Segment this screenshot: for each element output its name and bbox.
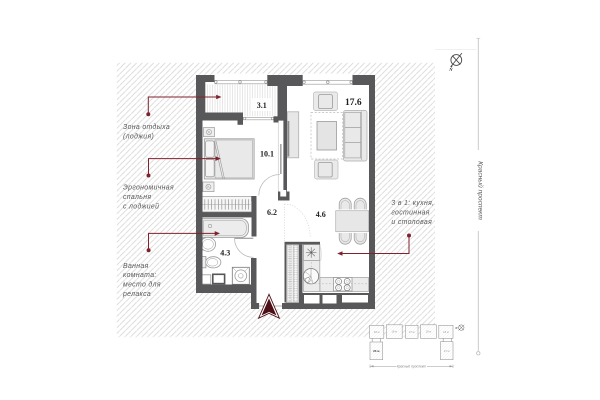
svg-text:и столовая: и столовая — [391, 219, 432, 226]
svg-text:Зона отдыха: Зона отдыха — [123, 123, 170, 131]
svg-text:4.6: 4.6 — [316, 210, 326, 219]
svg-text:N: N — [448, 67, 453, 72]
svg-text:10.1: 10.1 — [260, 149, 274, 158]
svg-text:4.3: 4.3 — [220, 249, 230, 258]
svg-text:18 м: 18 м — [426, 330, 432, 334]
svg-text:Красный проспект: Красный проспект — [476, 161, 484, 220]
svg-text:27 м: 27 м — [409, 330, 415, 334]
svg-text:27 м: 27 м — [444, 349, 450, 353]
svg-text:гостинная: гостинная — [391, 210, 429, 217]
svg-text:Ванная: Ванная — [123, 263, 149, 270]
svg-text:Красный проспект: Красный проспект — [397, 365, 427, 369]
svg-text:18 м: 18 м — [374, 330, 380, 334]
svg-text:3 в 1: кухня,: 3 в 1: кухня, — [391, 200, 434, 207]
svg-text:23 м: 23 м — [373, 349, 380, 353]
svg-text:18 м: 18 м — [443, 330, 449, 334]
svg-text:с лоджией: с лоджией — [123, 202, 159, 210]
svg-text:Эргономичная: Эргономичная — [123, 184, 174, 191]
svg-text:комната:: комната: — [123, 272, 157, 279]
svg-text:3.1: 3.1 — [257, 101, 267, 110]
svg-text:(лоджия): (лоджия) — [123, 133, 154, 141]
svg-text:спальня: спальня — [123, 194, 151, 201]
svg-text:6.2: 6.2 — [267, 208, 277, 217]
svg-text:релакса: релакса — [122, 291, 151, 298]
svg-text:17.6: 17.6 — [345, 98, 362, 108]
svg-text:18 м: 18 м — [391, 330, 397, 334]
svg-text:место для: место для — [123, 281, 161, 289]
